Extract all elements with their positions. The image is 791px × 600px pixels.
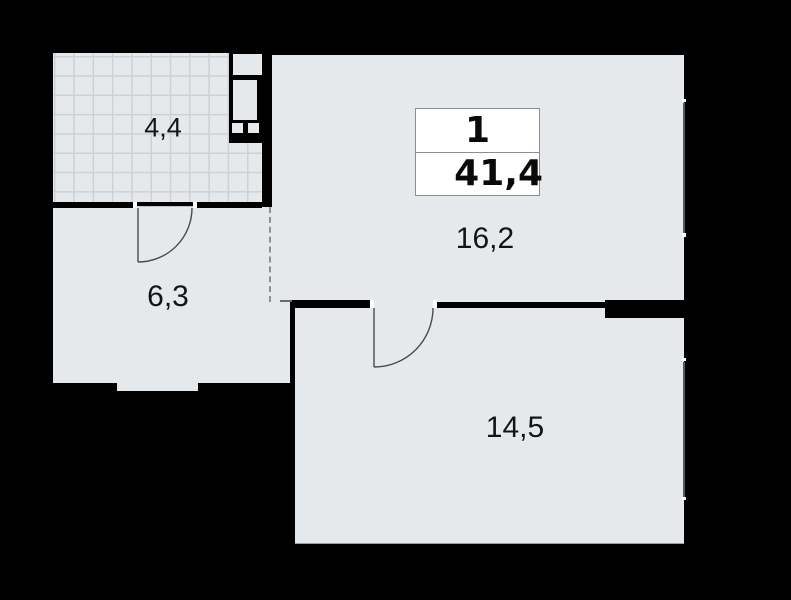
area-label-loggia: 4,4: [144, 115, 182, 142]
legend-total-area: 41,4: [416, 153, 539, 196]
loggia-door-arc: [138, 208, 192, 262]
area-label-living-room: 16,2: [456, 224, 514, 254]
bedroom-door-arc: [374, 308, 433, 367]
legend-box: 1 41,4: [415, 108, 540, 196]
floor-plan: 4,4 6,3 16,2 14,5 1 41,4: [0, 0, 791, 600]
area-label-bedroom: 14,5: [486, 413, 544, 443]
area-label-hallway: 6,3: [147, 282, 189, 312]
door-swings: [0, 0, 791, 600]
legend-rooms-count: 1: [416, 109, 539, 153]
